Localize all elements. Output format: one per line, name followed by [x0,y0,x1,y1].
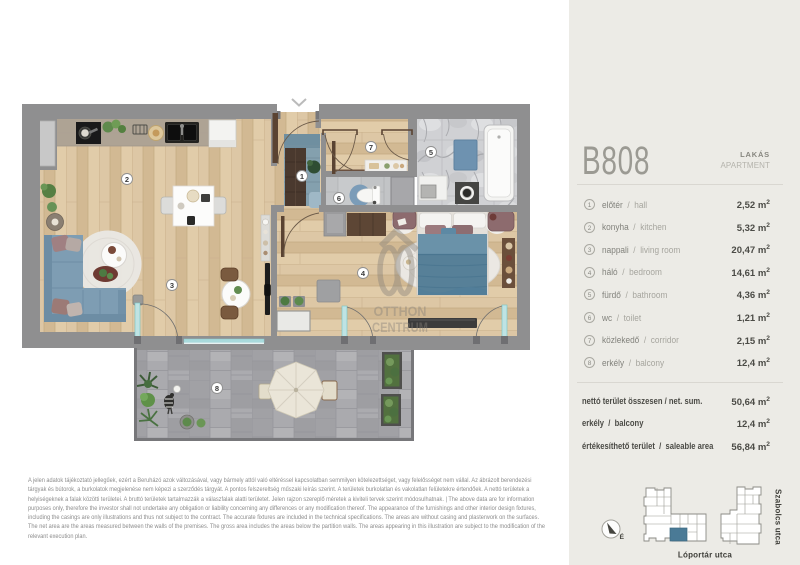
svg-text:É: É [620,532,625,541]
svg-text:3: 3 [170,281,174,290]
svg-text:6: 6 [337,194,341,203]
svg-text:1: 1 [300,172,304,181]
svg-text:Lóportár utca: Lóportár utca [678,551,733,560]
svg-text:2: 2 [125,175,129,184]
svg-text:7: 7 [369,143,373,152]
svg-text:5: 5 [429,148,433,157]
svg-text:OTTHON: OTTHON [374,303,427,319]
svg-text:8: 8 [215,384,219,393]
svg-text:Szabolcs utca: Szabolcs utca [774,489,783,545]
svg-text:CENTRUM: CENTRUM [372,319,428,335]
